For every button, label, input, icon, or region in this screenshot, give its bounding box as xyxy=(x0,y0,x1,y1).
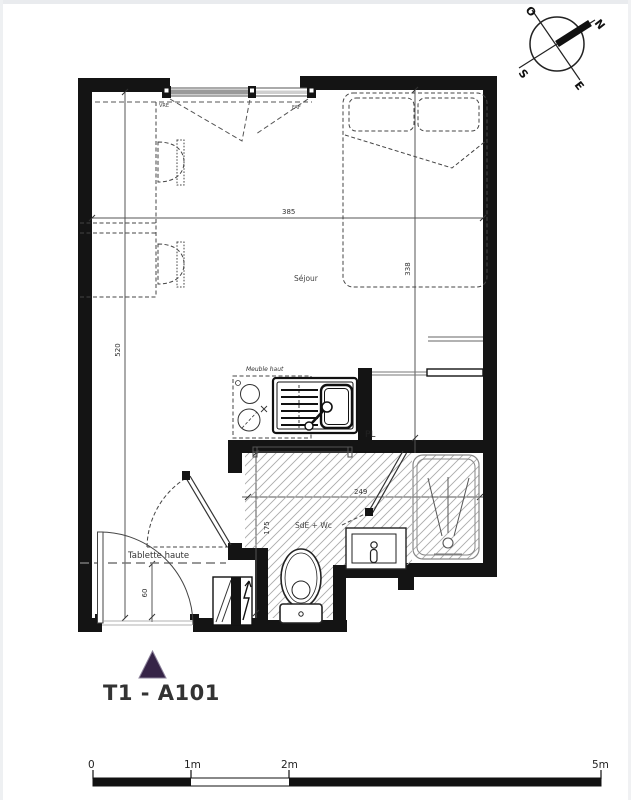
unit-title: T1 - A101 xyxy=(103,651,220,705)
wall-segment xyxy=(483,76,497,577)
washbasin xyxy=(346,528,406,569)
bed-pillow xyxy=(349,98,414,131)
closet-tracks xyxy=(372,337,483,376)
toilet-tank xyxy=(280,604,322,623)
washbasin-faucet xyxy=(371,542,377,548)
fold-seat xyxy=(158,142,184,182)
window-sash-vre xyxy=(167,90,252,95)
bathroom-door-swing xyxy=(147,478,186,547)
window-swing-lines xyxy=(95,99,312,141)
compass-east-label: E xyxy=(572,79,587,93)
compass-north-label: N xyxy=(592,17,608,32)
entry-door-leaf xyxy=(98,532,104,623)
scale-tick-1m: 1m xyxy=(184,759,201,771)
unit-marker-triangle-icon xyxy=(139,651,166,678)
floor-plan-page: VRE FAF 385 338 520 Séjour Meuble haut P… xyxy=(0,0,631,800)
shower-drain xyxy=(443,538,453,548)
fold-seat xyxy=(158,244,184,284)
dim-175: 175 xyxy=(263,521,271,534)
wall-segment xyxy=(228,453,242,473)
label-tablette-haute: Tablette haute xyxy=(127,551,189,561)
burner-mark xyxy=(242,412,257,428)
casement-swing xyxy=(170,99,250,141)
dim-249: 249 xyxy=(354,488,367,496)
scale-bar-segment-black xyxy=(289,778,601,786)
faucet-base xyxy=(305,422,313,430)
compass-axis-oe xyxy=(532,10,580,80)
room-label-sejour: Séjour xyxy=(294,274,319,283)
bed-blanket-fold xyxy=(345,135,487,168)
panel-bar xyxy=(231,577,241,625)
electrical-panel xyxy=(213,577,252,625)
scale-bar: 0 1m 2m 5m xyxy=(88,759,609,786)
scale-tick-0: 0 xyxy=(88,759,95,771)
window-sash-faf xyxy=(254,91,311,95)
wall-segment xyxy=(398,576,414,590)
window-label-vre: VRE xyxy=(159,103,169,109)
cross-mark xyxy=(261,406,267,412)
room-label-pl: PL xyxy=(365,430,375,440)
window-top xyxy=(95,86,316,141)
scale-tick-2m: 2m xyxy=(281,759,298,771)
entry-door-swing xyxy=(100,532,193,625)
wall-segment xyxy=(78,78,170,92)
compass-south-label: S xyxy=(516,67,531,81)
scale-bar-segment-black xyxy=(93,778,191,786)
bathroom xyxy=(245,447,479,623)
toilet-bowl xyxy=(281,549,321,607)
kitchen xyxy=(236,378,358,433)
dim-520: 520 xyxy=(114,343,122,356)
room-label-sde-wc: SdE + Wc xyxy=(295,521,332,530)
dim-385: 385 xyxy=(282,208,295,216)
hood-symbol xyxy=(236,381,241,386)
doors xyxy=(98,471,232,625)
washbasin-faucet-body xyxy=(371,550,378,563)
door-stop xyxy=(190,614,199,620)
floor-plan-drawing: VRE FAF 385 338 520 Séjour Meuble haut P… xyxy=(0,0,631,800)
window-cap-notch xyxy=(250,89,254,93)
wall-segment xyxy=(405,563,497,577)
page-edge-left xyxy=(0,0,3,800)
closet-door-panel xyxy=(427,369,483,376)
fold-seat-back xyxy=(177,140,184,185)
toilet xyxy=(280,549,322,623)
bathroom-door-end xyxy=(182,471,190,480)
window-label-faf: FAF xyxy=(292,105,301,111)
wall-segment xyxy=(300,76,497,90)
shower-door-jamb xyxy=(365,508,373,516)
window-cap-notch xyxy=(165,89,169,93)
bed-pillow xyxy=(418,98,479,131)
bathroom-door-leaf xyxy=(186,478,227,547)
unit-title-label: T1 - A101 xyxy=(103,681,220,705)
label-meuble-haut: Meuble haut xyxy=(246,366,284,373)
shower xyxy=(413,455,479,559)
wall-segment xyxy=(78,78,92,632)
window-cap-notch xyxy=(310,89,314,93)
compass-north-needle xyxy=(557,23,590,44)
cooktop-burner xyxy=(241,385,260,404)
compass-rose: O N S E xyxy=(516,4,608,93)
dim-338: 338 xyxy=(404,262,412,275)
bathroom-door-leaf xyxy=(190,476,231,545)
page-edge-top xyxy=(0,0,631,4)
wall-segment xyxy=(228,543,242,560)
fold-seat-back xyxy=(177,242,184,287)
scale-tick-5m: 5m xyxy=(592,759,609,771)
dim-60: 60 xyxy=(141,589,149,598)
